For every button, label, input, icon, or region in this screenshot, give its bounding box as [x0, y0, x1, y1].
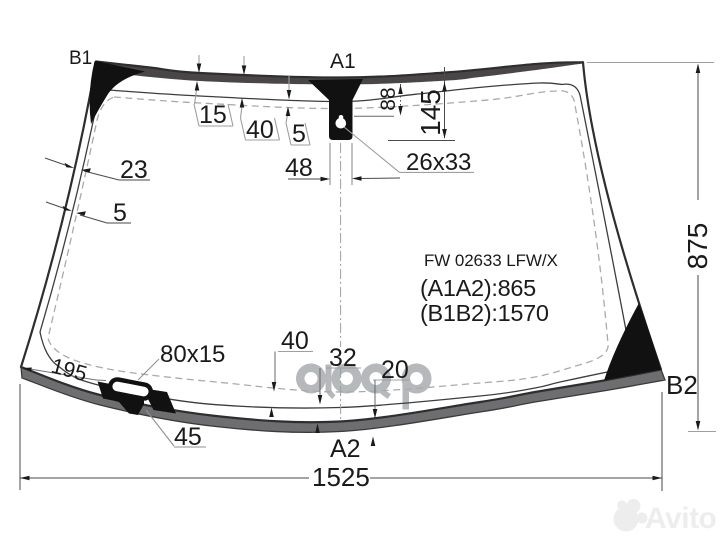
svg-text:15: 15 — [199, 101, 227, 129]
svg-text:48: 48 — [285, 154, 313, 182]
svg-text:875: 875 — [682, 223, 713, 270]
svg-text:FW 02633 LFW/X: FW 02633 LFW/X — [424, 251, 558, 270]
svg-text:B2: B2 — [666, 370, 698, 400]
svg-text:B1: B1 — [69, 48, 92, 69]
svg-text:26x33: 26x33 — [406, 149, 471, 176]
svg-text:(B1B2):1570: (B1B2):1570 — [420, 300, 549, 326]
svg-text:A1: A1 — [330, 50, 356, 73]
svg-text:5: 5 — [292, 120, 306, 148]
svg-text:145: 145 — [415, 89, 446, 136]
svg-text:A2: A2 — [330, 435, 361, 463]
svg-text:45: 45 — [174, 423, 202, 451]
svg-text:Avito: Avito — [645, 502, 717, 535]
svg-text:23: 23 — [120, 156, 148, 184]
svg-text:1525: 1525 — [312, 462, 370, 492]
svg-text:40: 40 — [246, 116, 274, 144]
svg-text:(A1A2):865: (A1A2):865 — [420, 275, 536, 301]
svg-text:80x15: 80x15 — [160, 341, 225, 368]
svg-text:5: 5 — [113, 199, 127, 227]
svg-text:20: 20 — [381, 356, 409, 384]
svg-text:32: 32 — [329, 344, 357, 372]
svg-text:40: 40 — [281, 327, 309, 355]
svg-text:88: 88 — [377, 87, 400, 110]
